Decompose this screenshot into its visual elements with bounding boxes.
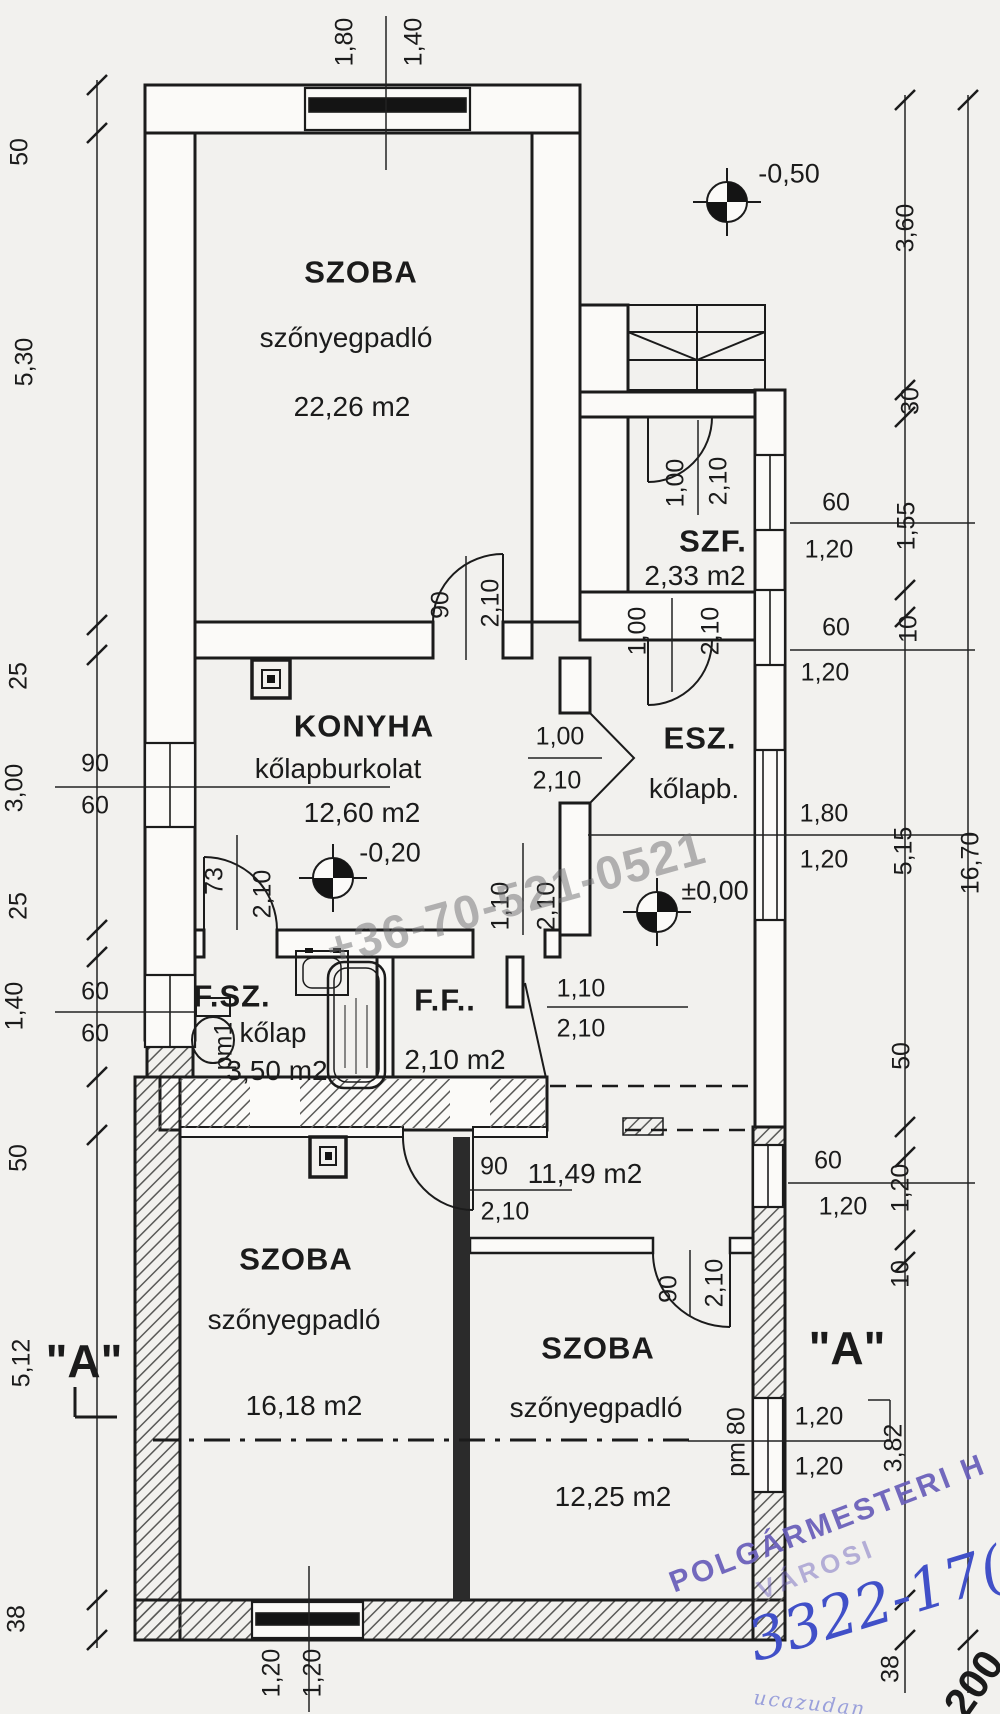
- room-name-szoba1: SZOBA: [304, 257, 418, 288]
- dim-left-4: 25: [7, 892, 32, 920]
- dim-win-r1-h: 1,20: [805, 538, 854, 563]
- entry-steps: [628, 305, 765, 390]
- room-area-fsz: 3,50 m2: [226, 1057, 327, 1085]
- dim-win-r4-w: 60: [814, 1149, 842, 1174]
- room-area-ff: 2,10 m2: [404, 1046, 505, 1074]
- room-area-hall: 11,49 m2: [528, 1160, 643, 1188]
- dim-left-6: 50: [7, 1144, 32, 1172]
- dim-left-0: 50: [8, 138, 33, 166]
- dim-left-win2-w: 60: [81, 980, 109, 1005]
- room-area-szf: 2,33 m2: [644, 562, 745, 590]
- dim-left-5: 1,40: [3, 982, 28, 1031]
- divider-wall: [453, 1137, 470, 1600]
- room-name-fsz: F.SZ.: [193, 981, 270, 1012]
- dim-door-d3-w: 1,00: [664, 459, 689, 508]
- room-name-szoba2: SZOBA: [239, 1244, 353, 1275]
- section-marker-right: "A": [809, 1325, 886, 1371]
- dim-door-d1-w: 90: [429, 591, 454, 619]
- dim-right-8: 3,82: [882, 1424, 907, 1473]
- dim-right-1: 30: [899, 387, 924, 415]
- level-entry: -0,50: [758, 161, 820, 188]
- dim-door-d2-w: 1,00: [536, 725, 585, 750]
- dim-win-r3-w: 1,80: [800, 802, 849, 827]
- dim-door-d7-h: 2,10: [557, 1017, 606, 1042]
- room-floor-szoba2: szőnyegpadló: [208, 1306, 381, 1334]
- dim-right-7: 10: [889, 1260, 914, 1288]
- dim-door-d9-h: 2,10: [703, 1259, 728, 1308]
- room-name-szf: SZF.: [679, 526, 747, 557]
- dim-top-window-h: 1,40: [402, 18, 427, 67]
- dim-left-win2-p: 60: [81, 1022, 109, 1047]
- dim-door-d4-w: 1,00: [626, 607, 651, 656]
- dim-door-d3-h: 2,10: [707, 457, 732, 506]
- dim-win-r1-w: 60: [822, 491, 850, 516]
- level-esz: ±0,00: [681, 878, 748, 905]
- dim-right-3: 10: [897, 615, 922, 643]
- dim-win-r5-parapet: pm 80: [725, 1407, 750, 1476]
- room-floor-szoba1: szőnyegpadló: [260, 324, 433, 352]
- room-area-konyha: 12,60 m2: [304, 799, 421, 827]
- dim-door-d5-w: 73: [203, 867, 228, 895]
- floor-plan-drawing: [0, 0, 1000, 1714]
- dim-right-5: 50: [890, 1042, 915, 1070]
- dim-door-d2-h: 2,10: [533, 769, 582, 794]
- dim-win-r2-w: 60: [822, 616, 850, 641]
- dim-door-d8-h: 2,10: [481, 1200, 530, 1225]
- floor-plan-page: SZOBA szőnyegpadló 22,26 m2 SZF. 2,33 m2…: [0, 0, 1000, 1714]
- dim-wc-parapet: pm1: [212, 1022, 237, 1071]
- dim-left-2: 25: [7, 662, 32, 690]
- room-floor-konyha: kőlapburkolat: [255, 755, 422, 783]
- dim-win-r5-h: 1,20: [795, 1455, 844, 1480]
- room-floor-szoba3: szőnyegpadló: [510, 1394, 683, 1422]
- dim-door-d7-w: 1,10: [557, 977, 606, 1002]
- dim-win-r5-w: 1,20: [795, 1405, 844, 1430]
- room-name-ff: F.F..: [414, 985, 476, 1016]
- dim-right-total: 16,70: [959, 832, 984, 895]
- dim-door-d8-w: 90: [480, 1155, 508, 1180]
- room-name-szoba3: SZOBA: [541, 1333, 655, 1364]
- room-area-szoba2: 16,18 m2: [246, 1392, 363, 1420]
- dim-win-r4-h: 1,20: [819, 1195, 868, 1220]
- dim-door-d1-h: 2,10: [479, 579, 504, 628]
- dim-right-9: 38: [879, 1655, 904, 1683]
- dim-win-bottom-w: 1,20: [260, 1649, 285, 1698]
- room-area-szoba3: 12,25 m2: [555, 1483, 672, 1511]
- dim-right-2: 1,55: [895, 502, 920, 551]
- dim-right-0: 3,60: [894, 204, 919, 253]
- room-area-szoba1: 22,26 m2: [294, 393, 411, 421]
- level-konyha: -0,20: [359, 840, 421, 867]
- dim-left-win1-w: 90: [81, 752, 109, 777]
- wall-hatch-patches: [180, 1079, 545, 1128]
- dim-left-win1-p: 60: [81, 794, 109, 819]
- dim-right-6: 1,20: [889, 1164, 914, 1213]
- room-name-esz: ESZ.: [664, 723, 737, 754]
- room-floor-fsz: kőlap: [240, 1019, 307, 1047]
- dim-win-r2-h: 1,20: [801, 661, 850, 686]
- section-marker-left: "A": [46, 1338, 123, 1384]
- dim-door-d4-h: 2,10: [699, 607, 724, 656]
- room-name-konyha: KONYHA: [294, 711, 434, 742]
- room-floor-esz: kőlapb.: [649, 775, 739, 803]
- dim-win-r3-h: 1,20: [800, 848, 849, 873]
- dim-left-3: 3,00: [3, 764, 28, 813]
- dim-left-7: 5,12: [10, 1339, 35, 1388]
- dim-left-8: 38: [5, 1605, 30, 1633]
- dim-door-d9-w: 90: [657, 1275, 682, 1303]
- dim-top-window-w: 1,80: [333, 18, 358, 67]
- section-flag: [75, 1387, 117, 1417]
- dim-left-1: 5,30: [13, 338, 38, 387]
- dim-win-bottom-h: 1,20: [301, 1649, 326, 1698]
- dim-door-d5-h: 2,10: [251, 870, 276, 919]
- dim-right-4: 5,15: [892, 827, 917, 876]
